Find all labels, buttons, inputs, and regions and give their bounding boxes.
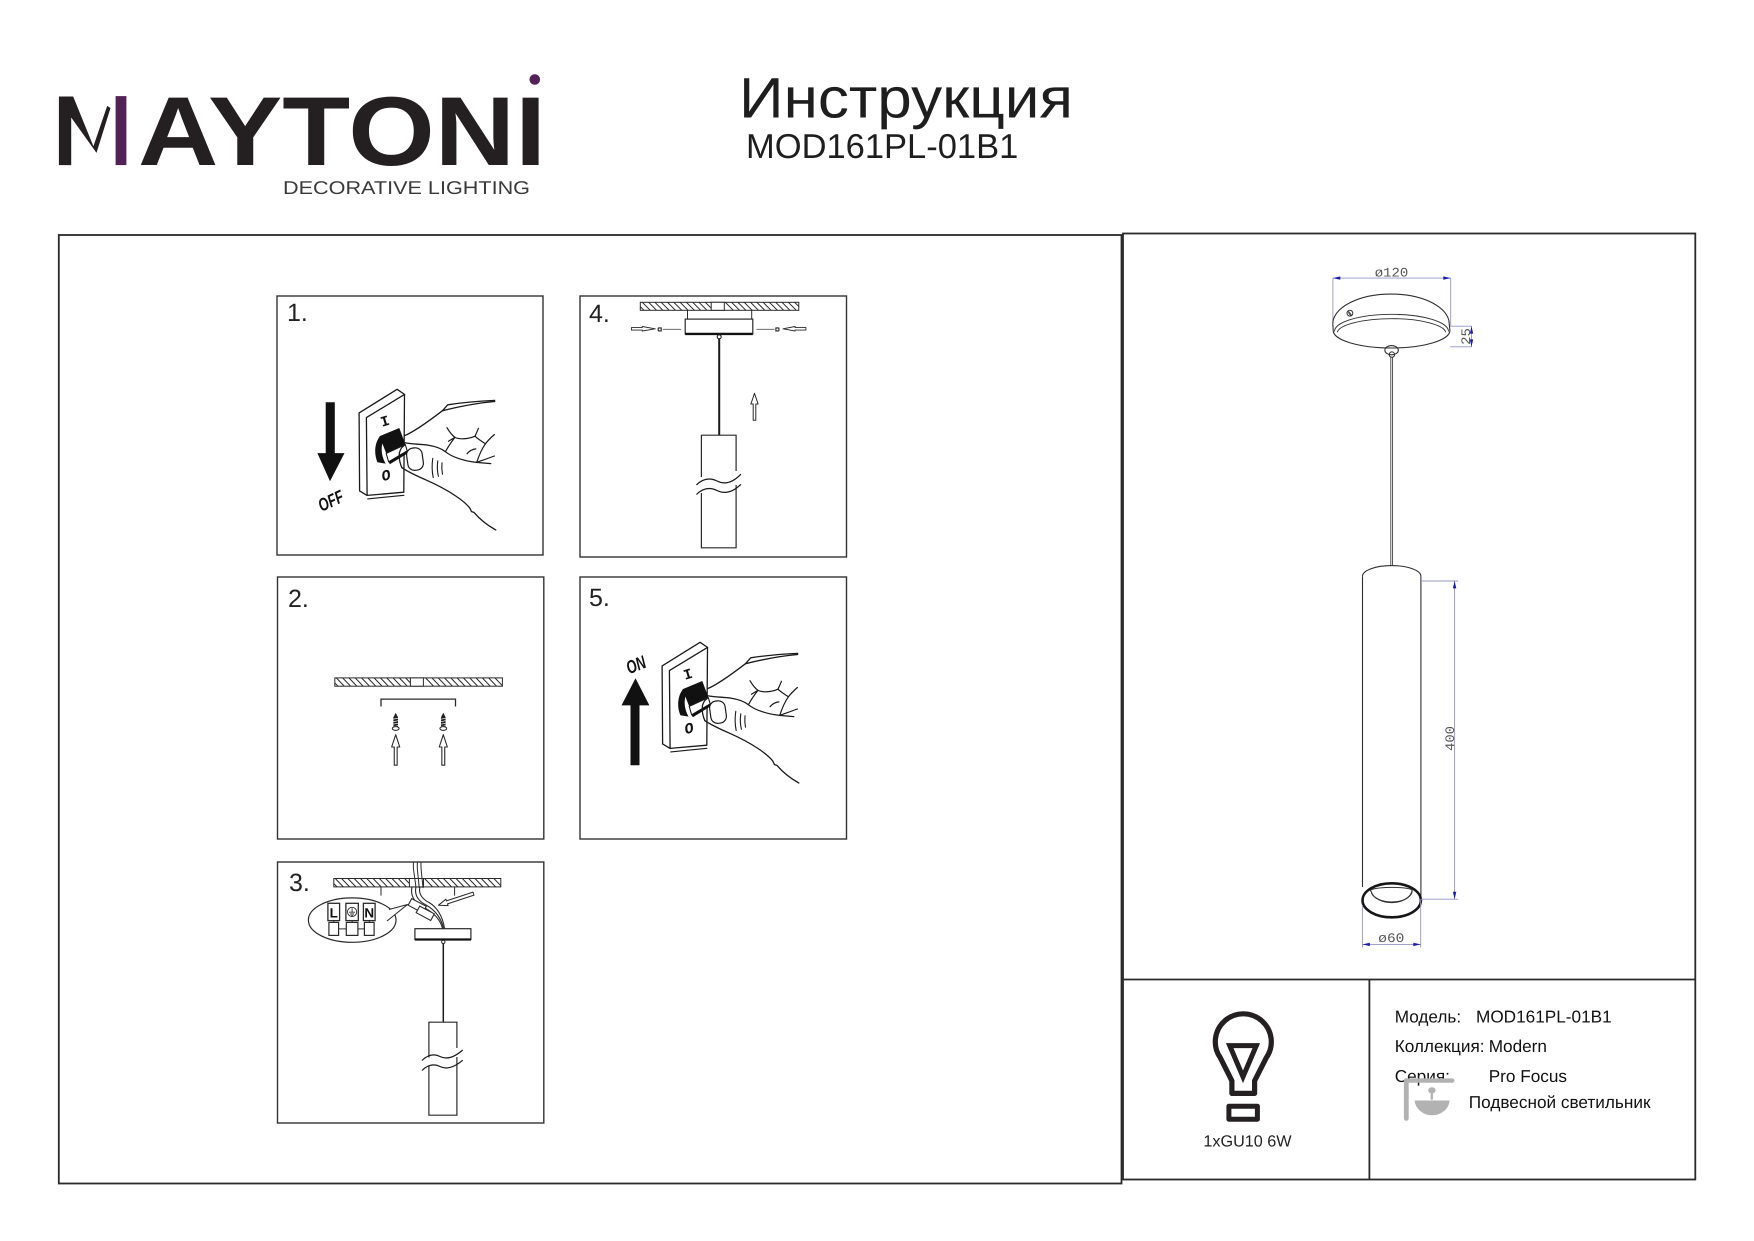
svg-text:5.: 5. [589,584,610,612]
svg-text:Pro Focus: Pro Focus [1489,1066,1567,1086]
svg-text:MOD161PL-01B1: MOD161PL-01B1 [746,128,1018,166]
svg-text:1xGU10 6W: 1xGU10 6W [1203,1133,1292,1151]
svg-text:Инструкция: Инструкция [739,67,1073,131]
svg-text:2.: 2. [288,585,309,613]
svg-text:Коллекция:: Коллекция: [1395,1036,1485,1056]
svg-text:3.: 3. [289,869,310,897]
svg-text:DECORATIVE LIGHTING: DECORATIVE LIGHTING [283,177,530,198]
svg-text:AYTONI: AYTONI [138,76,546,186]
svg-text:N: N [364,906,374,921]
svg-text:Modern: Modern [1489,1036,1547,1056]
svg-text:Серия:: Серия: [1395,1066,1450,1086]
svg-text:ø60: ø60 [1378,931,1404,946]
svg-text:ø120: ø120 [1375,265,1409,280]
svg-text:4.: 4. [589,300,610,328]
svg-text:MOD161PL-01B1: MOD161PL-01B1 [1476,1006,1612,1026]
svg-text:L: L [330,906,338,921]
svg-text:Модель:: Модель: [1395,1006,1461,1026]
svg-text:400: 400 [1443,726,1458,751]
svg-text:Подвесной светильник: Подвесной светильник [1469,1092,1651,1112]
svg-text:25: 25 [1459,328,1474,345]
svg-text:1.: 1. [287,299,308,327]
